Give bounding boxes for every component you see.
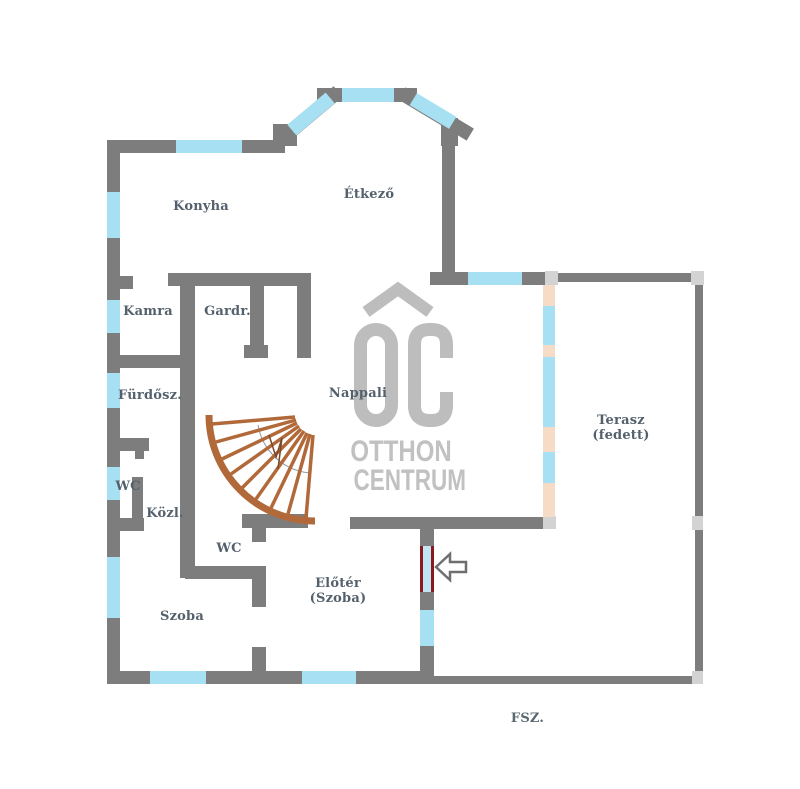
window-terrace-2 <box>543 357 555 427</box>
room-label-terasz: Terasz (fedett) <box>579 414 663 444</box>
floor-label-fsz: FSZ. <box>495 712 560 727</box>
room-label-nappali: Nappali <box>318 387 398 402</box>
window-entry-side <box>420 610 434 646</box>
wall-dining-right <box>442 128 455 285</box>
window-top-wall <box>176 140 242 153</box>
wall-entry-upper <box>420 517 434 549</box>
window-left-1 <box>107 192 120 238</box>
door-terrace-4 <box>543 483 555 517</box>
entry-door <box>420 546 434 592</box>
room-label-gardrob: Gardr. <box>190 305 265 320</box>
room-label-furdoszoba: Fürdősz. <box>110 389 190 404</box>
door-terrace-2 <box>543 345 555 357</box>
wall-nappali-bottom <box>350 517 555 529</box>
window-bay-top <box>342 88 394 102</box>
spiral-staircase <box>183 405 318 540</box>
room-label-terasz-line1: Terasz <box>597 413 645 428</box>
window-bay-left <box>287 93 334 136</box>
wall-entry-mid <box>420 590 434 612</box>
wall-terrace-top <box>555 273 703 282</box>
wall-furdoszoba-top <box>107 355 195 368</box>
room-label-terasz-line2: (fedett) <box>592 428 649 443</box>
room-label-kozlekedo: Közl. <box>140 507 190 522</box>
wall-wc-upper-lip <box>135 451 144 459</box>
wall-wc-upper-top <box>107 438 149 451</box>
room-label-konyha: Konyha <box>160 200 242 215</box>
room-label-etkezo: Étkező <box>329 188 409 203</box>
wall-wc-upper-bottom <box>107 518 144 531</box>
window-nappali-top <box>468 272 522 285</box>
wall-terrace-right <box>695 273 703 683</box>
room-label-wc-upper: WC <box>108 480 148 495</box>
window-terrace-1 <box>543 306 555 345</box>
terrace-post-e <box>692 516 703 530</box>
logo-oc-monogram <box>348 318 458 432</box>
room-label-szoba: Szoba <box>145 610 219 625</box>
room-label-eloter: Előtér (Szoba) <box>294 577 382 607</box>
wall-szoba-east-upper <box>252 566 266 607</box>
room-label-wc-lower: WC <box>205 542 253 557</box>
room-label-kamra: Kamra <box>110 305 186 320</box>
room-label-eloter-line2: (Szoba) <box>310 591 367 606</box>
floor-plan: OTTHON CENTRUM Konyha Étkező Kamra Gardr… <box>0 0 800 789</box>
wall-kitchen-stub <box>107 276 133 289</box>
door-terrace-3 <box>543 427 555 452</box>
logo-roof-icon <box>358 282 438 318</box>
wall-szoba-top <box>185 566 261 579</box>
wall-entry-lower <box>420 644 434 684</box>
logo-centrum-text: CENTRUM <box>354 466 447 496</box>
wall-gardrob-foot <box>244 345 268 358</box>
terrace-post-nw <box>545 271 558 285</box>
entry-arrow-icon <box>433 550 469 586</box>
terrace-post-sw <box>543 516 556 529</box>
wall-szoba-east-lower <box>252 647 266 677</box>
window-terrace-3 <box>543 452 555 483</box>
terrace-post-ne <box>691 271 704 285</box>
window-bottom-2 <box>302 671 356 684</box>
window-left-5 <box>107 557 120 618</box>
wall-terrace-bottom <box>433 676 703 684</box>
wall-gardrob-east <box>297 273 311 358</box>
logo-otthon-text: OTTHON <box>350 437 449 467</box>
terrace-post-se <box>692 671 703 684</box>
window-bottom-1 <box>150 671 206 684</box>
room-label-eloter-line1: Előtér <box>315 576 361 591</box>
door-terrace-1 <box>543 285 555 306</box>
